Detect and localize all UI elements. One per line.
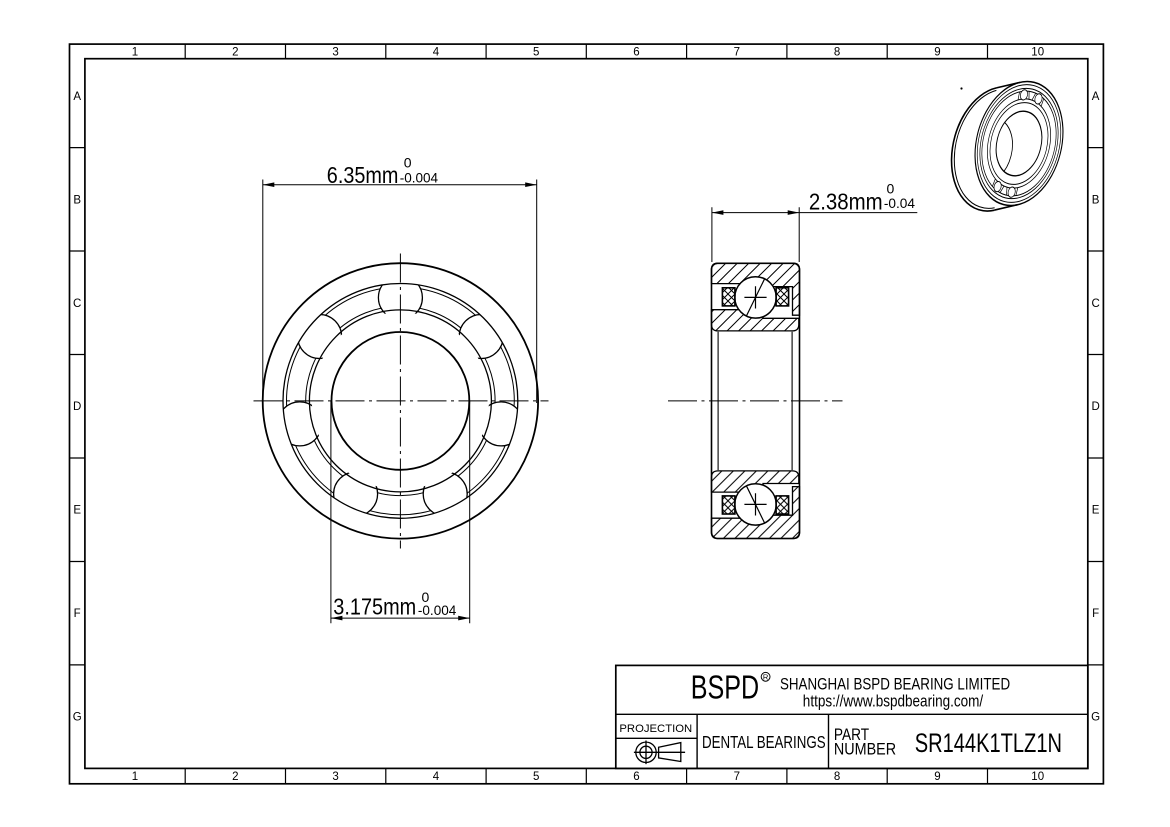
svg-text:B: B [73,194,81,206]
svg-text:C: C [73,298,81,310]
svg-text:https://www.bspdbearing.com/: https://www.bspdbearing.com/ [803,691,984,710]
svg-text:D: D [1091,401,1099,413]
svg-text:8: 8 [834,47,840,59]
svg-text:E: E [73,505,81,517]
svg-text:4: 4 [433,771,440,783]
svg-text:A: A [73,91,81,103]
svg-text:D: D [73,401,81,413]
svg-text:DENTAL BEARINGS: DENTAL BEARINGS [702,732,826,752]
svg-text:9: 9 [934,771,940,783]
svg-text:9: 9 [934,47,940,59]
svg-text:5: 5 [533,771,539,783]
svg-text:6.35mm: 6.35mm [327,162,399,188]
svg-text:F: F [1092,608,1099,620]
svg-text:-0.004: -0.004 [400,170,439,186]
svg-text:1: 1 [132,47,138,59]
svg-text:2: 2 [232,771,238,783]
svg-text:0: 0 [404,155,412,171]
svg-text:3: 3 [332,47,338,59]
svg-text:-0.04: -0.04 [884,195,915,211]
svg-text:3.175mm: 3.175mm [333,594,416,620]
svg-text:7: 7 [734,47,740,59]
svg-text:B: B [1092,194,1100,206]
svg-text:3: 3 [332,771,338,783]
svg-text:PROJECTION: PROJECTION [619,723,692,735]
svg-text:G: G [1091,712,1100,724]
svg-text:5: 5 [533,47,539,59]
svg-text:4: 4 [433,47,440,59]
svg-text:2.38mm: 2.38mm [809,189,883,215]
svg-text:1: 1 [132,771,138,783]
svg-text:10: 10 [1031,771,1044,783]
svg-text:6: 6 [633,771,639,783]
svg-text:6: 6 [633,47,639,59]
svg-text:G: G [73,712,82,724]
svg-text:R: R [763,673,769,682]
svg-text:C: C [1091,298,1099,310]
svg-text:7: 7 [734,771,740,783]
svg-text:-0.004: -0.004 [418,602,457,618]
svg-text:F: F [74,608,81,620]
svg-text:A: A [1092,91,1100,103]
svg-text:NUMBER: NUMBER [834,740,896,759]
svg-text:2: 2 [232,47,238,59]
svg-text:8: 8 [834,771,840,783]
svg-text:E: E [1092,505,1100,517]
svg-text:10: 10 [1031,47,1044,59]
svg-text:SR144K1TLZ1N: SR144K1TLZ1N [915,728,1062,758]
svg-text:BSPD: BSPD [691,669,759,706]
